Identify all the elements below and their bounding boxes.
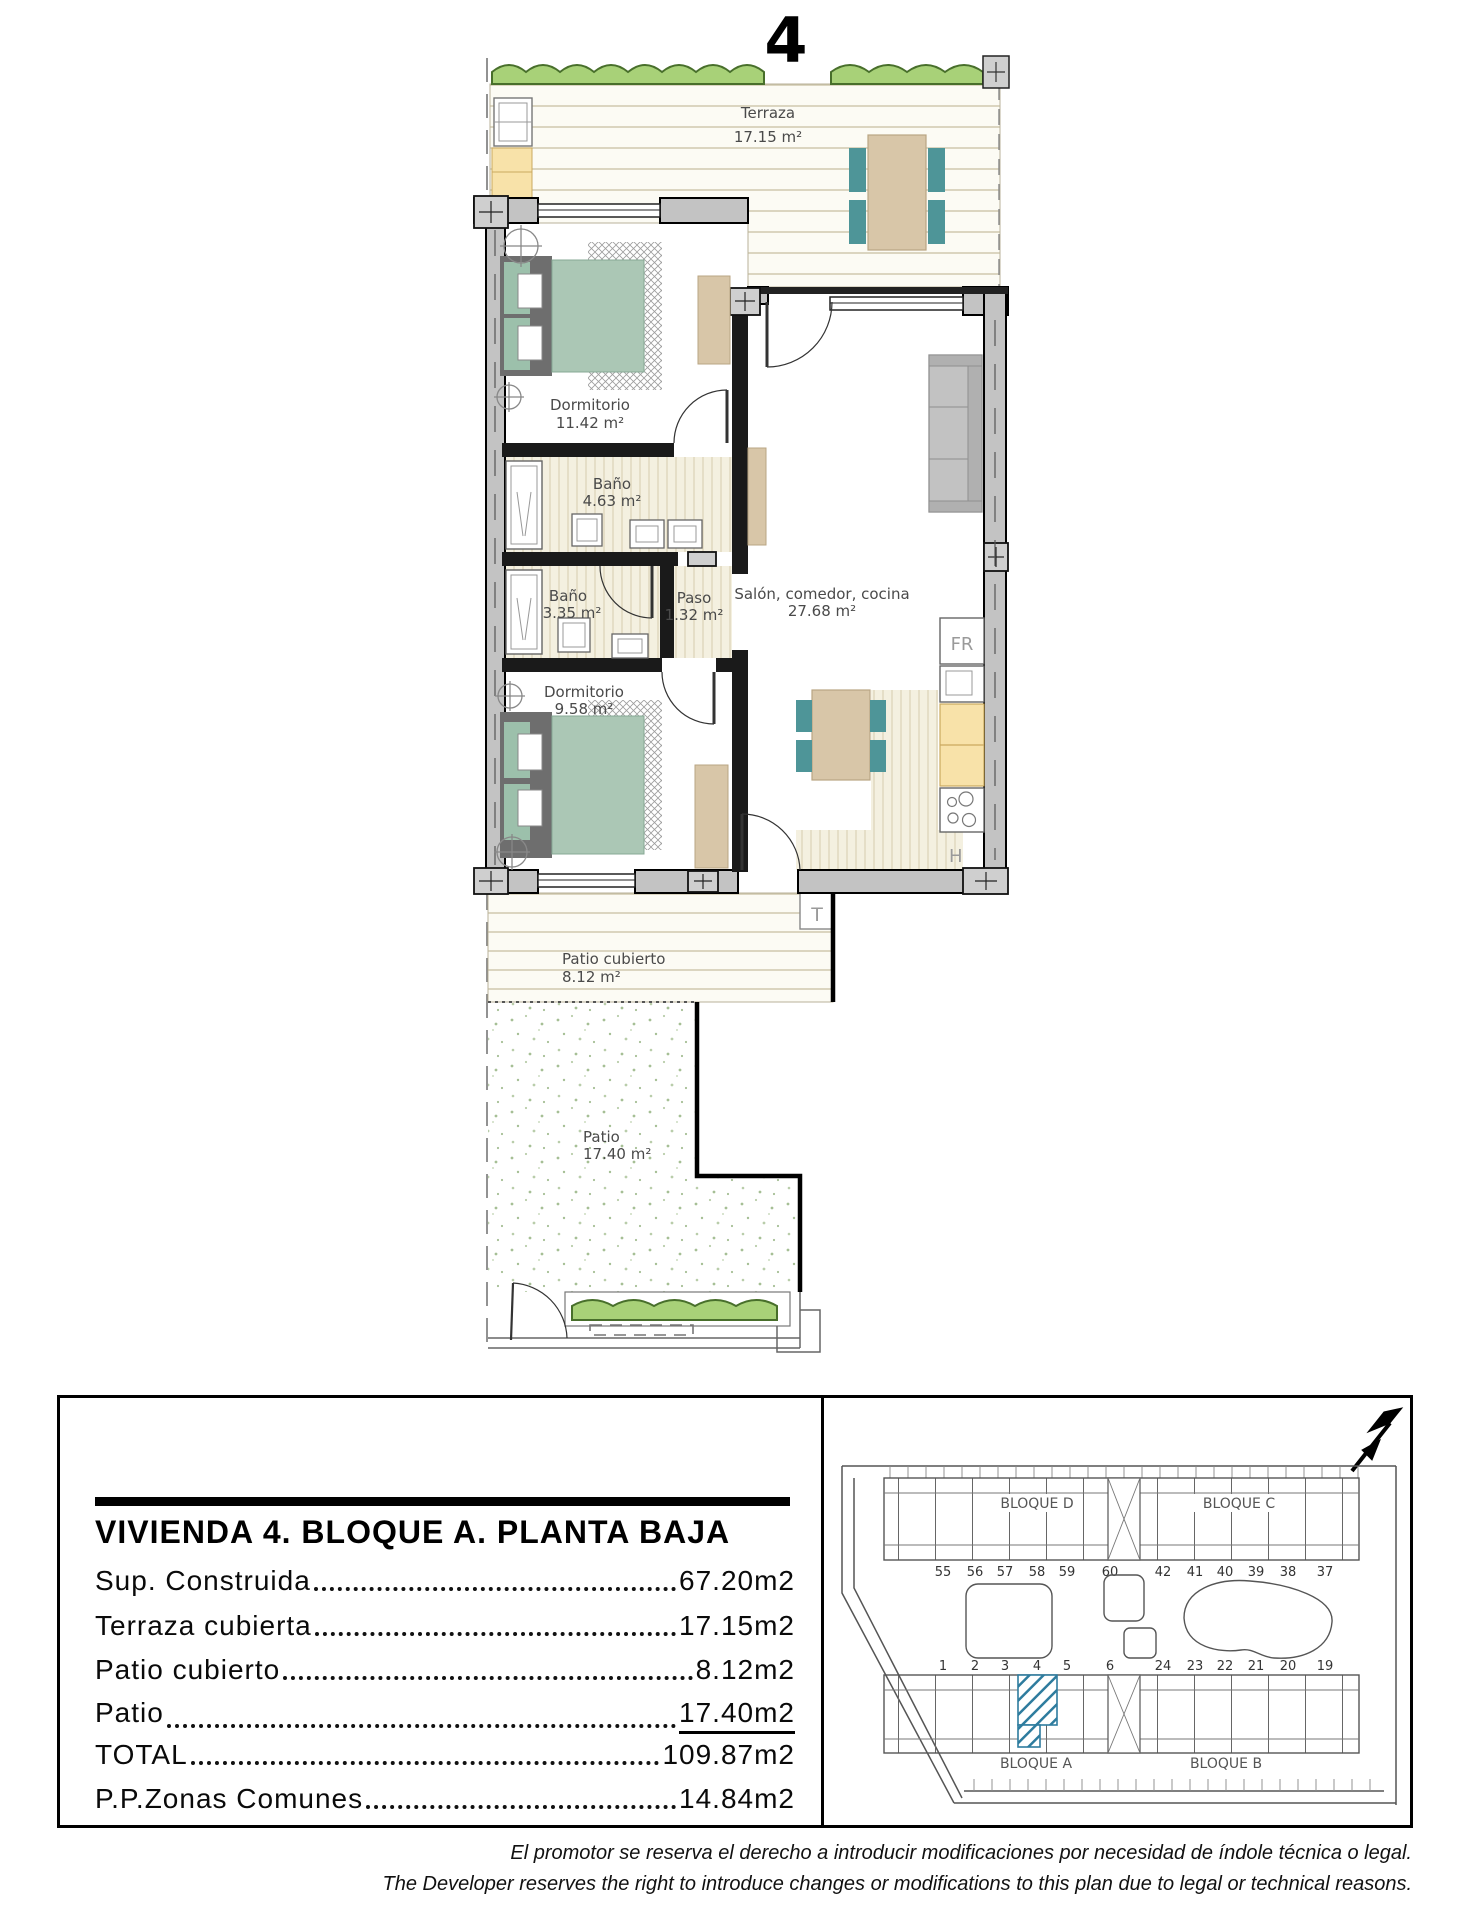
svg-text:41: 41 bbox=[1187, 1565, 1204, 1580]
pillow bbox=[518, 326, 542, 360]
bed bbox=[552, 716, 644, 854]
svg-text:60: 60 bbox=[1102, 1565, 1119, 1580]
dining-chair bbox=[870, 700, 886, 732]
kitchen-floor bbox=[796, 830, 963, 870]
pillow bbox=[518, 790, 542, 826]
room-area-terraza: 17.15 m² bbox=[734, 128, 802, 146]
wall-bottom bbox=[635, 870, 738, 893]
svg-text:38: 38 bbox=[1280, 1565, 1297, 1580]
svg-text:59: 59 bbox=[1059, 1565, 1076, 1580]
terraza-area: Terraza 17.15 m² bbox=[490, 56, 1009, 287]
block-d-label: BLOQUE D bbox=[1000, 1496, 1073, 1512]
disclaimer: El promotor se reserva el derecho a intr… bbox=[383, 1838, 1412, 1900]
bidet bbox=[668, 520, 702, 548]
row-value: 8.12m2 bbox=[696, 1654, 795, 1686]
room-area-patio-cubierto: 8.12 m² bbox=[562, 968, 621, 986]
room-label-bano1: Baño bbox=[593, 475, 631, 493]
svg-text:19: 19 bbox=[1317, 1659, 1334, 1674]
building-band-top: BLOQUE D BLOQUE C bbox=[884, 1478, 1359, 1560]
disclaimer-line-en: The Developer reserves the right to intr… bbox=[383, 1869, 1412, 1900]
wardrobe bbox=[695, 765, 728, 868]
terrace-table bbox=[868, 135, 926, 250]
bed bbox=[552, 260, 644, 372]
dot-leader bbox=[191, 1761, 660, 1765]
row-label: Patio cubierto bbox=[95, 1654, 280, 1686]
amenity-small bbox=[1124, 1628, 1156, 1658]
room-area-dormitorio2: 9.58 m² bbox=[555, 700, 614, 718]
floorplan-page: 4 Terraza 17.15 m² Patio cubierto bbox=[0, 0, 1468, 1920]
floor-plan: 4 Terraza 17.15 m² Patio cubierto bbox=[0, 0, 1468, 1395]
svg-text:1: 1 bbox=[939, 1659, 947, 1674]
salon: FR H Salón, comedor, cocina 27.68 m² bbox=[734, 355, 984, 867]
info-title: VIVIENDA 4. BLOQUE A. PLANTA BAJA bbox=[95, 1514, 815, 1551]
info-section: VIVIENDA 4. BLOQUE A. PLANTA BAJA Sup. C… bbox=[57, 1395, 1413, 1828]
terrace-chair bbox=[928, 200, 945, 244]
row-label: TOTAL bbox=[95, 1739, 188, 1771]
dormitorio2: Dormitorio 9.58 m² bbox=[494, 681, 728, 870]
wall-top bbox=[660, 198, 748, 223]
svg-text:3: 3 bbox=[1001, 1659, 1009, 1674]
room-label-patio-cubierto: Patio cubierto bbox=[562, 950, 665, 968]
room-area-dormitorio1: 11.42 m² bbox=[556, 414, 624, 432]
dot-leader bbox=[314, 1587, 676, 1591]
dot-leader bbox=[366, 1805, 676, 1809]
row-value: 109.87m2 bbox=[662, 1739, 795, 1771]
room-area-paso: 1.32 m² bbox=[665, 606, 724, 624]
row-label: Terraza cubierta bbox=[95, 1610, 312, 1642]
dining-chair bbox=[870, 740, 886, 772]
svg-text:21: 21 bbox=[1248, 1659, 1265, 1674]
room-label-bano2: Baño bbox=[549, 587, 587, 605]
storage-box bbox=[492, 148, 532, 172]
svg-text:56: 56 bbox=[967, 1565, 984, 1580]
room-label-dormitorio2: Dormitorio bbox=[544, 683, 624, 701]
toilet bbox=[630, 520, 664, 548]
terrace-chair bbox=[849, 148, 866, 192]
patio-cubierto-area: Patio cubierto 8.12 m² T bbox=[488, 893, 833, 1002]
wall-lintel bbox=[748, 287, 1008, 294]
svg-text:42: 42 bbox=[1155, 1565, 1172, 1580]
dot-leader bbox=[167, 1724, 676, 1728]
room-label-terraza: Terraza bbox=[740, 104, 795, 122]
hedge-top-left bbox=[492, 65, 764, 84]
tank-label: T bbox=[810, 904, 823, 926]
terrace-chair bbox=[849, 200, 866, 244]
room-label-salon: Salón, comedor, cocina bbox=[734, 585, 909, 603]
unit-numbers-top: 55 56 57 58 59 60 42 41 40 39 38 37 bbox=[935, 1565, 1334, 1580]
padel-court bbox=[966, 1584, 1052, 1658]
window-salon bbox=[830, 297, 963, 310]
dot-leader bbox=[315, 1632, 676, 1636]
room-area-salon: 27.68 m² bbox=[788, 602, 856, 620]
window-dormitorio1 bbox=[538, 204, 660, 217]
site-plan: BLOQUE D BLOQUE C 55 56 57 58 59 60 42 4… bbox=[824, 1398, 1413, 1825]
hob bbox=[940, 788, 984, 832]
dining-table bbox=[812, 690, 870, 780]
pool bbox=[1184, 1581, 1332, 1659]
svg-text:37: 37 bbox=[1317, 1565, 1334, 1580]
terrace-chair bbox=[928, 148, 945, 192]
dining-chair bbox=[796, 700, 812, 732]
svg-text:24: 24 bbox=[1155, 1659, 1172, 1674]
wall-bottom bbox=[505, 870, 538, 893]
fridge-label: FR bbox=[951, 634, 974, 655]
room-label-dormitorio1: Dormitorio bbox=[550, 396, 630, 414]
svg-text:39: 39 bbox=[1248, 1565, 1265, 1580]
window-dormitorio2 bbox=[538, 874, 635, 887]
dot-leader bbox=[283, 1676, 692, 1680]
title-bar bbox=[95, 1497, 790, 1506]
svg-text:22: 22 bbox=[1217, 1659, 1234, 1674]
svg-text:2: 2 bbox=[971, 1659, 979, 1674]
row-label: Patio bbox=[95, 1697, 164, 1729]
hedge-top-right bbox=[831, 65, 983, 84]
unit-numbers-bottom: 1 2 3 4 5 6 24 23 22 21 20 19 bbox=[939, 1659, 1333, 1674]
sofa bbox=[929, 355, 982, 512]
room-label-paso: Paso bbox=[677, 589, 712, 607]
row-label: Sup. Construida bbox=[95, 1565, 311, 1597]
storage-box bbox=[492, 172, 532, 198]
block-c-label: BLOQUE C bbox=[1203, 1496, 1275, 1512]
info-row: Patio cubierto 8.12m2 bbox=[95, 1654, 795, 1686]
row-value: 17.40m2 bbox=[679, 1697, 795, 1734]
pillow bbox=[518, 734, 542, 770]
svg-text:40: 40 bbox=[1217, 1565, 1234, 1580]
svg-text:5: 5 bbox=[1063, 1659, 1071, 1674]
hob-label: H bbox=[949, 846, 963, 867]
svg-text:4: 4 bbox=[1033, 1659, 1041, 1674]
row-value: 14.84m2 bbox=[679, 1783, 795, 1815]
sideboard bbox=[748, 448, 766, 545]
amenities bbox=[966, 1575, 1332, 1658]
north-arrow-icon bbox=[1352, 1408, 1402, 1471]
row-value: 17.15m2 bbox=[679, 1610, 795, 1642]
svg-text:55: 55 bbox=[935, 1565, 952, 1580]
row-value: 67.20m2 bbox=[679, 1565, 795, 1597]
info-row: Terraza cubierta 17.15m2 bbox=[95, 1610, 795, 1642]
info-row: P.P.Zonas Comunes 14.84m2 bbox=[95, 1783, 795, 1815]
room-area-bano1: 4.63 m² bbox=[583, 492, 642, 510]
block-a-label: BLOQUE A bbox=[1000, 1756, 1072, 1772]
info-row: Sup. Construida 67.20m2 bbox=[95, 1565, 795, 1597]
amenity-small bbox=[1104, 1575, 1144, 1621]
svg-text:20: 20 bbox=[1280, 1659, 1297, 1674]
block-b-label: BLOQUE B bbox=[1190, 1756, 1262, 1772]
unit-number: 4 bbox=[764, 4, 807, 77]
toilet bbox=[612, 634, 648, 658]
dining-chair bbox=[796, 740, 812, 772]
info-row: TOTAL 109.87m2 bbox=[95, 1739, 795, 1771]
svg-text:58: 58 bbox=[1029, 1565, 1046, 1580]
row-label: P.P.Zonas Comunes bbox=[95, 1783, 363, 1815]
room-label-patio: Patio bbox=[583, 1128, 620, 1146]
hedge-bottom bbox=[572, 1300, 777, 1320]
wall-bottom bbox=[798, 870, 986, 893]
room-area-patio: 17.40 m² bbox=[583, 1145, 651, 1163]
svg-text:6: 6 bbox=[1106, 1659, 1114, 1674]
disclaimer-line-es: El promotor se reserva el derecho a intr… bbox=[383, 1838, 1412, 1869]
svg-text:57: 57 bbox=[997, 1565, 1014, 1580]
pillow bbox=[518, 274, 542, 308]
wardrobe bbox=[698, 276, 730, 364]
info-row: Patio 17.40m2 bbox=[95, 1697, 795, 1734]
building-band-bottom: BLOQUE A BLOQUE B bbox=[884, 1675, 1359, 1772]
svg-text:23: 23 bbox=[1187, 1659, 1204, 1674]
room-area-bano2: 3.35 m² bbox=[543, 604, 602, 622]
